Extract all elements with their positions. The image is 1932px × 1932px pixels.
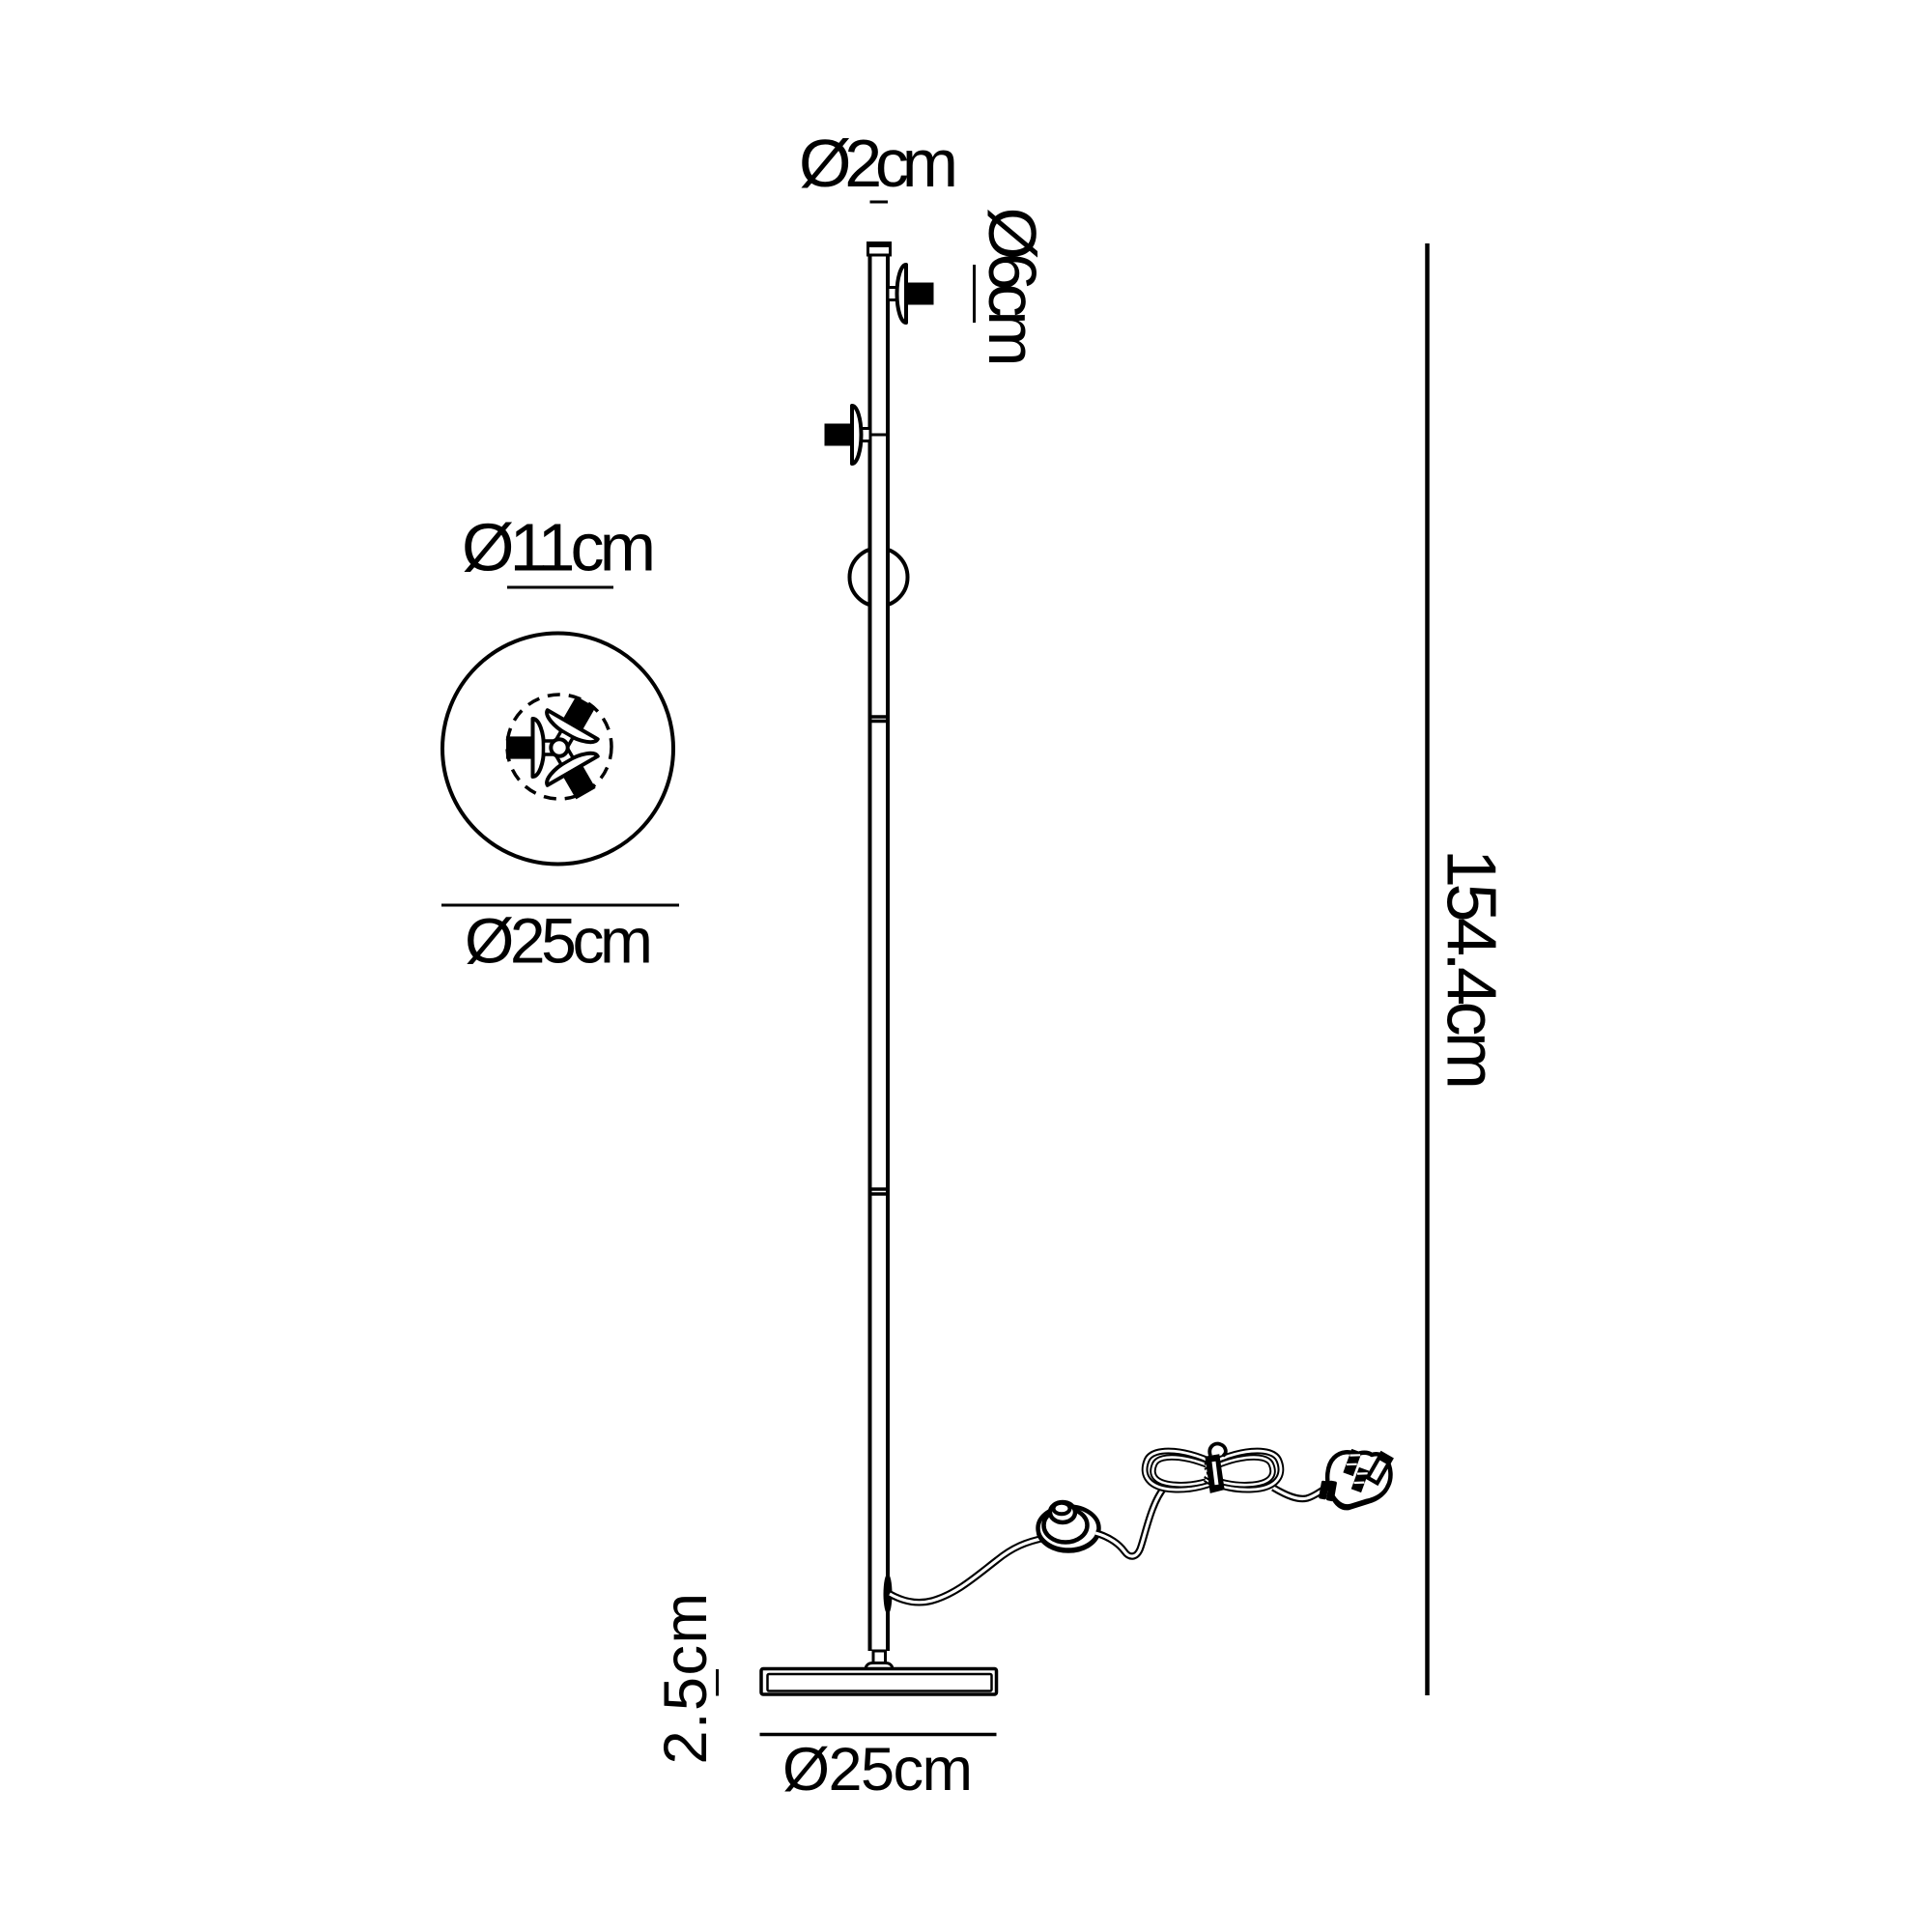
svg-text:Ø11cm: Ø11cm [462,510,656,585]
svg-text:2.5cm: 2.5cm [652,1593,720,1765]
svg-text:154.4cm: 154.4cm [1433,849,1510,1090]
svg-text:Ø6cm: Ø6cm [975,208,1050,367]
svg-text:Ø25cm: Ø25cm [782,1736,973,1804]
svg-text:Ø25cm: Ø25cm [465,905,653,977]
svg-text:Ø2cm: Ø2cm [799,126,958,201]
